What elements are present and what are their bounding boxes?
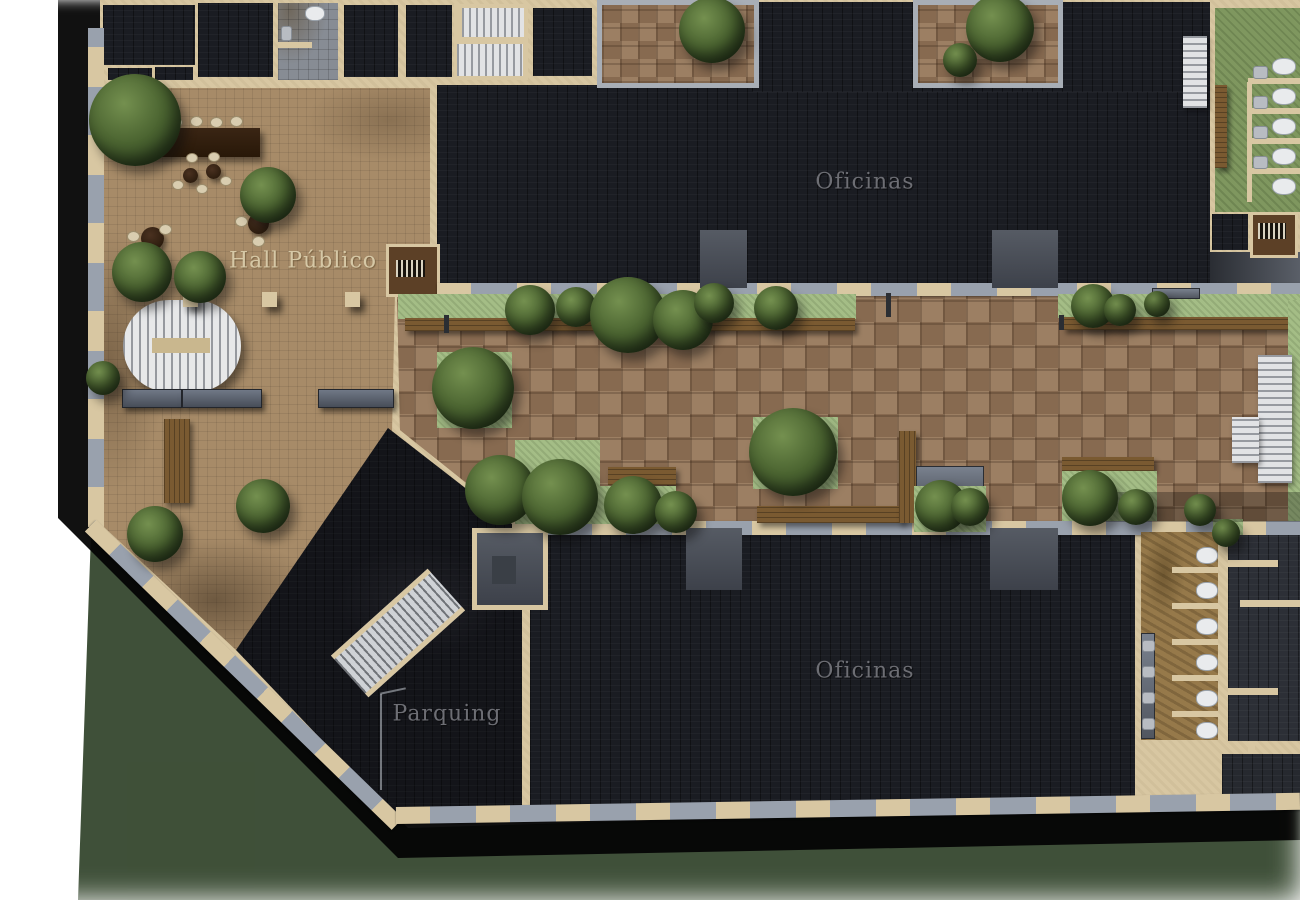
label-oficinas-bottom: Oficinas [815,659,914,684]
floor-plan: Hall Público Oficinas Oficinas Parquing [0,0,1300,900]
sink [1142,692,1155,704]
tree [749,408,837,496]
office-vestibule [990,528,1058,590]
post [1059,315,1064,330]
sink [281,26,292,41]
tree [679,0,745,63]
shrub [1104,294,1136,326]
stairs-right [1183,36,1207,108]
toilet [305,6,325,21]
cafe-table [206,164,221,179]
stairs-top-flight-1 [462,8,524,37]
stall-partition [1172,567,1218,573]
post [444,315,449,333]
chair [186,153,198,163]
chair [208,152,220,162]
toilet [1196,547,1218,564]
wood-bench [164,419,190,503]
room-top-left-5 [533,8,592,76]
shrub [754,286,798,330]
partition-wall [1228,560,1278,567]
bleacher-stairs-side [1232,417,1259,463]
office-vestibule [686,528,742,590]
shrub [694,283,734,323]
toilet [1196,654,1218,671]
partition-wall [1240,600,1300,607]
chair [220,176,232,186]
wc-partition-wall [278,42,312,48]
tree [522,459,598,535]
post [886,293,891,317]
toilet [1272,178,1296,195]
toilet [1196,690,1218,707]
oval-staircase-landing [152,338,210,353]
shrub [1144,291,1170,317]
chair [230,116,243,127]
wood-deck-bench [757,506,903,523]
stall-partition [1172,675,1218,681]
tree [1062,470,1118,526]
chair [190,116,203,127]
chair [235,216,248,227]
stall-partition [1172,711,1218,717]
wood-bench [1062,457,1154,471]
tree [89,74,181,166]
room-top-left-4 [406,5,452,77]
label-parquing: Parquing [393,702,502,727]
elevator-grille [396,260,425,277]
tree [432,347,514,429]
chair [159,224,172,235]
shrub [1118,489,1154,525]
toilet [1272,118,1296,135]
toilet [1272,88,1296,105]
parking-bay-line [380,694,382,790]
shrub [1212,519,1240,547]
stone-bench [318,389,394,408]
tree [86,361,120,395]
cafe-table [183,168,198,183]
chair [127,231,140,242]
sink [1253,66,1268,79]
shrub [505,285,555,335]
chair [210,117,223,128]
room-beside-elevator [1212,214,1248,250]
stone-bench [182,389,262,408]
sink [1253,96,1268,109]
bleacher-stairs [1258,355,1292,483]
elevator-grille [1258,223,1286,239]
chair [196,184,208,194]
stone-bench [122,389,182,408]
toilet [1196,582,1218,599]
office-vestibule [992,230,1058,288]
room-top-left-3 [344,5,398,77]
sink [1253,126,1268,139]
sink [1142,640,1155,652]
toilet [1272,58,1296,75]
column [262,292,277,307]
toilet [1196,618,1218,635]
sink [1253,156,1268,169]
stall-partition [1172,603,1218,609]
tree [240,167,296,223]
room-top-left-1 [103,5,195,65]
sink [1142,666,1155,678]
toilet [1272,148,1296,165]
sink [1142,718,1155,730]
shrub [655,491,697,533]
office-vestibule [700,230,747,288]
room-top-left-2 [198,3,273,77]
tree [174,251,226,303]
room-top-left-small-2 [155,67,193,80]
stairs-top-flight-2 [457,44,523,76]
label-hall-publico: Hall Público [229,249,377,274]
tree [112,242,172,302]
chair [252,236,265,247]
shrub [943,43,977,77]
vestibule-fixture [492,556,516,584]
column [345,292,360,307]
shrub [1184,494,1216,526]
toilet [1196,722,1218,739]
chair [172,180,184,190]
stall-partition [1172,639,1218,645]
tree [236,479,290,533]
shrub [951,488,989,526]
label-oficinas-top: Oficinas [815,170,914,195]
partition-wall [1228,688,1278,695]
restroom-counter [1215,85,1227,168]
tree [127,506,183,562]
tree [604,476,662,534]
